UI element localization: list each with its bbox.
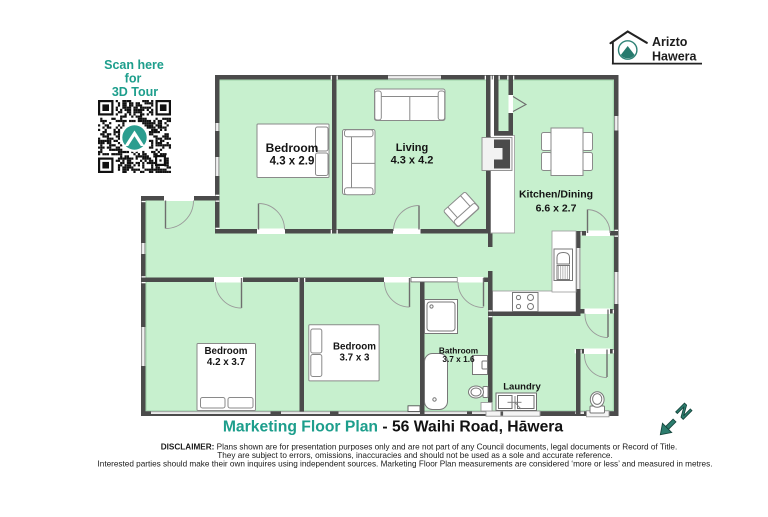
svg-text:Arizto: Arizto [652, 35, 688, 49]
svg-text:Living: Living [396, 142, 428, 154]
svg-text:Interested parties should make: Interested parties should make their own… [98, 459, 713, 468]
svg-text:3D Tour: 3D Tour [112, 85, 158, 99]
svg-text:Bedroom: Bedroom [266, 141, 319, 155]
svg-text:Hawera: Hawera [652, 50, 698, 64]
svg-text:Scan here: Scan here [104, 58, 164, 72]
svg-text:Laundry: Laundry [503, 382, 541, 393]
svg-text:4.3 x 2.9: 4.3 x 2.9 [270, 156, 315, 168]
svg-text:4.2 x 3.7: 4.2 x 3.7 [207, 357, 246, 368]
svg-text:4.3 x 4.2: 4.3 x 4.2 [391, 155, 434, 167]
svg-text:Bedroom: Bedroom [333, 342, 376, 353]
svg-text:6.6 x 2.7: 6.6 x 2.7 [536, 203, 577, 215]
svg-text:3.7 x 3: 3.7 x 3 [340, 353, 371, 364]
svg-text:3.7 x 1.6: 3.7 x 1.6 [442, 354, 475, 364]
svg-text:for: for [125, 72, 142, 86]
svg-text:Kitchen/Dining: Kitchen/Dining [519, 189, 593, 201]
svg-text:Marketing Floor Plan - 56 Waih: Marketing Floor Plan - 56 Waihi Road, Hā… [223, 419, 564, 436]
svg-text:Bedroom: Bedroom [204, 346, 247, 357]
